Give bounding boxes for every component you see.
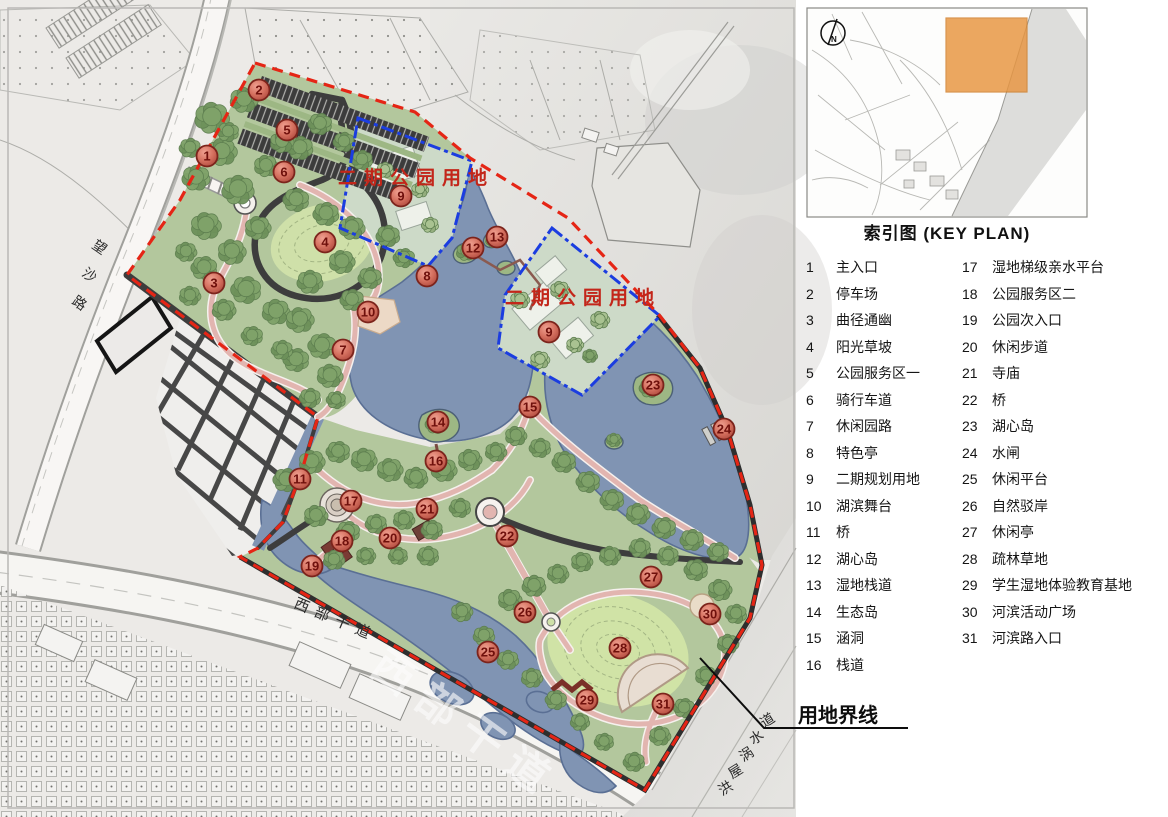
map-marker-27: 27: [641, 567, 662, 588]
legend-label: 公园次入口: [992, 310, 1062, 330]
legend-row-16: 16栈道: [806, 652, 956, 679]
tree-cluster: [326, 391, 345, 408]
map-marker-19: 19: [302, 556, 323, 577]
map-marker-29: 29: [577, 690, 598, 711]
svg-text:9: 9: [397, 189, 404, 204]
legend-row-21: 21寺庙: [962, 360, 1168, 387]
legend-label: 休闲平台: [992, 469, 1048, 489]
legend-number: 26: [962, 498, 992, 514]
north-label: N: [831, 35, 837, 44]
tree-cluster: [725, 604, 747, 623]
svg-text:28: 28: [613, 641, 627, 656]
map-marker-26: 26: [515, 602, 536, 623]
legend-number: 25: [962, 471, 992, 487]
legend-label: 公园服务区一: [836, 363, 920, 383]
tree-cluster: [219, 240, 247, 265]
svg-text:22: 22: [500, 529, 514, 544]
legend-number: 22: [962, 392, 992, 408]
tree-cluster: [283, 188, 309, 211]
svg-text:19: 19: [305, 559, 319, 574]
map-marker-7: 7: [333, 340, 354, 361]
legend-number: 6: [806, 392, 836, 408]
legend-label: 疏林草地: [992, 549, 1048, 569]
svg-text:31: 31: [656, 697, 670, 712]
tree-cluster: [308, 113, 332, 134]
svg-text:21: 21: [420, 502, 434, 517]
map-marker-4: 4: [315, 232, 336, 253]
tree-cluster: [330, 250, 356, 273]
tree-cluster: [545, 690, 567, 709]
legend-row-12: 12湖心岛: [806, 546, 956, 573]
legend-label: 休闲亭: [992, 522, 1034, 542]
tree-cluster: [192, 213, 222, 240]
legend-row-4: 4阳光草坡: [806, 334, 956, 361]
map-marker-25: 25: [478, 642, 499, 663]
tree-cluster: [299, 388, 321, 407]
map-marker-16: 16: [426, 451, 447, 472]
map-marker-2: 2: [249, 80, 270, 101]
map-marker-17: 17: [341, 491, 362, 512]
tree-cluster: [333, 132, 355, 151]
legend-row-9: 9二期规划用地: [806, 466, 956, 493]
svg-text:29: 29: [580, 693, 594, 708]
svg-text:1: 1: [203, 149, 210, 164]
legend-label: 河滨活动广场: [992, 602, 1076, 622]
keyplan-site-highlight: [946, 18, 1027, 92]
tree-cluster: [607, 433, 622, 447]
map-marker-24: 24: [714, 419, 735, 440]
tree-cluster: [217, 122, 239, 141]
tree-cluster: [241, 326, 263, 345]
tree-cluster: [449, 498, 471, 517]
map-marker-9: 9: [539, 322, 560, 343]
tree-cluster: [351, 150, 373, 169]
map-marker-14: 14: [428, 412, 449, 433]
legend-label: 特色亭: [836, 443, 878, 463]
legend-label: 公园服务区二: [992, 284, 1076, 304]
tree-cluster: [421, 520, 443, 539]
map-marker-22: 22: [497, 526, 518, 547]
map-marker-8: 8: [417, 266, 438, 287]
tree-cluster: [707, 542, 729, 561]
legend-row-18: 18公园服务区二: [962, 281, 1168, 308]
legend-label: 生态岛: [836, 602, 878, 622]
tree-cluster: [271, 340, 293, 359]
tree-cluster: [231, 277, 261, 304]
legend-number: 13: [806, 577, 836, 593]
legend-number: 15: [806, 630, 836, 646]
svg-text:5: 5: [283, 123, 290, 138]
map-marker-30: 30: [700, 604, 721, 625]
svg-text:12: 12: [466, 241, 480, 256]
legend-row-15: 15涵洞: [806, 625, 956, 652]
legend-row-31: 31河滨路入口: [962, 625, 1168, 652]
map-marker-3: 3: [204, 273, 225, 294]
legend-number: 16: [806, 657, 836, 673]
svg-text:9: 9: [545, 325, 552, 340]
map-marker-13: 13: [487, 227, 508, 248]
map-marker-15: 15: [520, 397, 541, 418]
legend-row-19: 19公园次入口: [962, 307, 1168, 334]
legend-row-28: 28疏林草地: [962, 546, 1168, 573]
legend-number: 5: [806, 365, 836, 381]
legend-label: 涵洞: [836, 628, 864, 648]
legend-row-1: 1主入口: [806, 254, 956, 281]
tree-cluster: [572, 552, 593, 571]
key-plan: N: [807, 8, 1087, 217]
svg-text:6: 6: [280, 165, 287, 180]
svg-text:25: 25: [481, 645, 495, 660]
svg-text:11: 11: [293, 472, 307, 487]
svg-text:26: 26: [518, 605, 532, 620]
plan-sheet: 二期公园用地二期公园用地望沙路西部干道西部干道洪屋涡水道 12345678991…: [0, 0, 1168, 817]
legend-number: 2: [806, 286, 836, 302]
tree-cluster: [506, 426, 527, 445]
legend-number: 19: [962, 312, 992, 328]
legend-number: 7: [806, 418, 836, 434]
legend-row-5: 5公园服务区一: [806, 360, 956, 387]
svg-text:17: 17: [344, 494, 358, 509]
svg-text:15: 15: [523, 400, 537, 415]
legend-label: 河滨路入口: [992, 628, 1062, 648]
legend-number: 30: [962, 604, 992, 620]
tree-cluster: [652, 517, 676, 538]
legend-label: 寺庙: [992, 363, 1020, 383]
tree-cluster: [680, 529, 704, 550]
tree-cluster: [600, 489, 624, 510]
legend-label: 桥: [836, 522, 850, 542]
tree-cluster: [305, 505, 329, 526]
tree-cluster: [388, 547, 407, 564]
legend-number: 23: [962, 418, 992, 434]
map-marker-18: 18: [332, 531, 353, 552]
legend-number: 9: [806, 471, 836, 487]
legend-label: 阳光草坡: [836, 337, 892, 357]
legend-label: 湖心岛: [836, 549, 878, 569]
legend-number: 8: [806, 445, 836, 461]
legend-label: 骑行车道: [836, 390, 892, 410]
svg-text:8: 8: [423, 269, 430, 284]
legend-number: 24: [962, 445, 992, 461]
legend-column-2: 17湿地梯级亲水平台18公园服务区二19公园次入口20休闲步道21寺庙22桥23…: [962, 254, 1168, 652]
svg-text:20: 20: [383, 531, 397, 546]
legend-row-20: 20休闲步道: [962, 334, 1168, 361]
tree-cluster: [378, 458, 404, 481]
phase2-area-label: 二期公园用地: [505, 286, 661, 309]
tree-cluster: [684, 559, 708, 580]
legend-number: 17: [962, 259, 992, 275]
legend-label: 湖滨舞台: [836, 496, 892, 516]
svg-text:24: 24: [717, 422, 732, 437]
tree-cluster: [376, 225, 400, 246]
legend-number: 4: [806, 339, 836, 355]
map-marker-6: 6: [274, 162, 295, 183]
legend-column-1: 1主入口2停车场3曲径通幽4阳光草坡5公园服务区一6骑行车道7休闲园路8特色亭9…: [806, 254, 956, 678]
keyplan-caption: 索引图 (KEY PLAN): [806, 219, 1088, 244]
legend-row-23: 23湖心岛: [962, 413, 1168, 440]
tree-cluster: [709, 579, 732, 600]
legend-number: 21: [962, 365, 992, 381]
legend-label: 主入口: [836, 257, 878, 277]
svg-text:30: 30: [703, 607, 717, 622]
tree-cluster: [459, 449, 483, 470]
legend-row-26: 26自然驳岸: [962, 493, 1168, 520]
boundary-label: 用地界线: [798, 703, 878, 727]
legend-label: 曲径通幽: [836, 310, 892, 330]
tree-cluster: [657, 546, 679, 565]
tree-cluster: [591, 311, 610, 328]
tree-cluster: [629, 538, 651, 557]
legend-row-13: 13湿地栈道: [806, 572, 956, 599]
tree-cluster: [358, 267, 382, 288]
legend-row-27: 27休闲亭: [962, 519, 1168, 546]
tree-cluster: [452, 602, 473, 621]
svg-text:23: 23: [646, 378, 660, 393]
legend-row-25: 25休闲平台: [962, 466, 1168, 493]
legend-number: 12: [806, 551, 836, 567]
legend-number: 20: [962, 339, 992, 355]
legend-label: 二期规划用地: [836, 469, 920, 489]
tree-cluster: [421, 217, 438, 232]
map-marker-5: 5: [277, 120, 298, 141]
tree-cluster: [576, 471, 600, 492]
svg-text:16: 16: [429, 454, 443, 469]
tree-cluster: [287, 308, 315, 333]
tree-cluster: [308, 334, 336, 359]
legend-row-2: 2停车场: [806, 281, 956, 308]
legend-number: 29: [962, 577, 992, 593]
legend-row-29: 29学生湿地体验教育基地: [962, 572, 1168, 599]
tree-cluster: [529, 438, 551, 457]
map-marker-23: 23: [643, 375, 664, 396]
legend-label: 栈道: [836, 655, 864, 675]
legend-label: 水闸: [992, 443, 1020, 463]
legend-row-8: 8特色亭: [806, 440, 956, 467]
legend-label: 休闲园路: [836, 416, 892, 436]
tree-cluster: [357, 547, 376, 564]
legend-label: 湿地梯级亲水平台: [992, 257, 1104, 277]
tree-cluster: [552, 451, 576, 472]
legend-row-30: 30河滨活动广场: [962, 599, 1168, 626]
legend-row-3: 3曲径通幽: [806, 307, 956, 334]
tree-cluster: [594, 733, 613, 750]
svg-text:7: 7: [339, 343, 346, 358]
svg-text:4: 4: [321, 235, 329, 250]
legend-number: 14: [806, 604, 836, 620]
map-marker-31: 31: [653, 694, 674, 715]
svg-text:13: 13: [490, 230, 504, 245]
tree-cluster: [417, 546, 439, 565]
legend-number: 18: [962, 286, 992, 302]
legend-row-14: 14生态岛: [806, 599, 956, 626]
legend-number: 11: [806, 524, 836, 540]
legend-row-6: 6骑行车道: [806, 387, 956, 414]
legend-row-11: 11桥: [806, 519, 956, 546]
legend-label: 湖心岛: [992, 416, 1034, 436]
legend-label: 桥: [992, 390, 1006, 410]
legend-label: 学生湿地体验教育基地: [992, 575, 1132, 595]
legend-row-22: 22桥: [962, 387, 1168, 414]
svg-text:3: 3: [210, 276, 217, 291]
legend-row-7: 7休闲园路: [806, 413, 956, 440]
map-marker-20: 20: [380, 528, 401, 549]
phase2-area-label: 二期公园用地: [338, 166, 494, 189]
map-marker-1: 1: [197, 146, 218, 167]
svg-text:14: 14: [431, 415, 446, 430]
legend-number: 1: [806, 259, 836, 275]
map-marker-10: 10: [358, 302, 379, 323]
map-marker-11: 11: [290, 469, 311, 490]
legend-number: 28: [962, 551, 992, 567]
legend-row-17: 17湿地梯级亲水平台: [962, 254, 1168, 281]
tree-cluster: [623, 752, 645, 771]
map-marker-9: 9: [391, 186, 412, 207]
legend-number: 27: [962, 524, 992, 540]
legend-row-24: 24水闸: [962, 440, 1168, 467]
legend-number: 31: [962, 630, 992, 646]
legend-label: 停车场: [836, 284, 878, 304]
tree-cluster: [246, 216, 272, 239]
legend-label: 休闲步道: [992, 337, 1048, 357]
tree-cluster: [531, 351, 550, 368]
svg-text:2: 2: [255, 83, 262, 98]
svg-text:18: 18: [335, 534, 349, 549]
map-marker-28: 28: [610, 638, 631, 659]
legend-label: 湿地栈道: [836, 575, 892, 595]
legend-label: 自然驳岸: [992, 496, 1048, 516]
legend-number: 3: [806, 312, 836, 328]
legend-row-10: 10湖滨舞台: [806, 493, 956, 520]
tree-cluster: [583, 349, 598, 363]
svg-text:27: 27: [644, 570, 658, 585]
map-marker-12: 12: [463, 238, 484, 259]
map-marker-21: 21: [417, 499, 438, 520]
svg-text:10: 10: [361, 305, 375, 320]
legend-number: 10: [806, 498, 836, 514]
tree-cluster: [326, 441, 350, 462]
tree-cluster: [567, 337, 584, 352]
